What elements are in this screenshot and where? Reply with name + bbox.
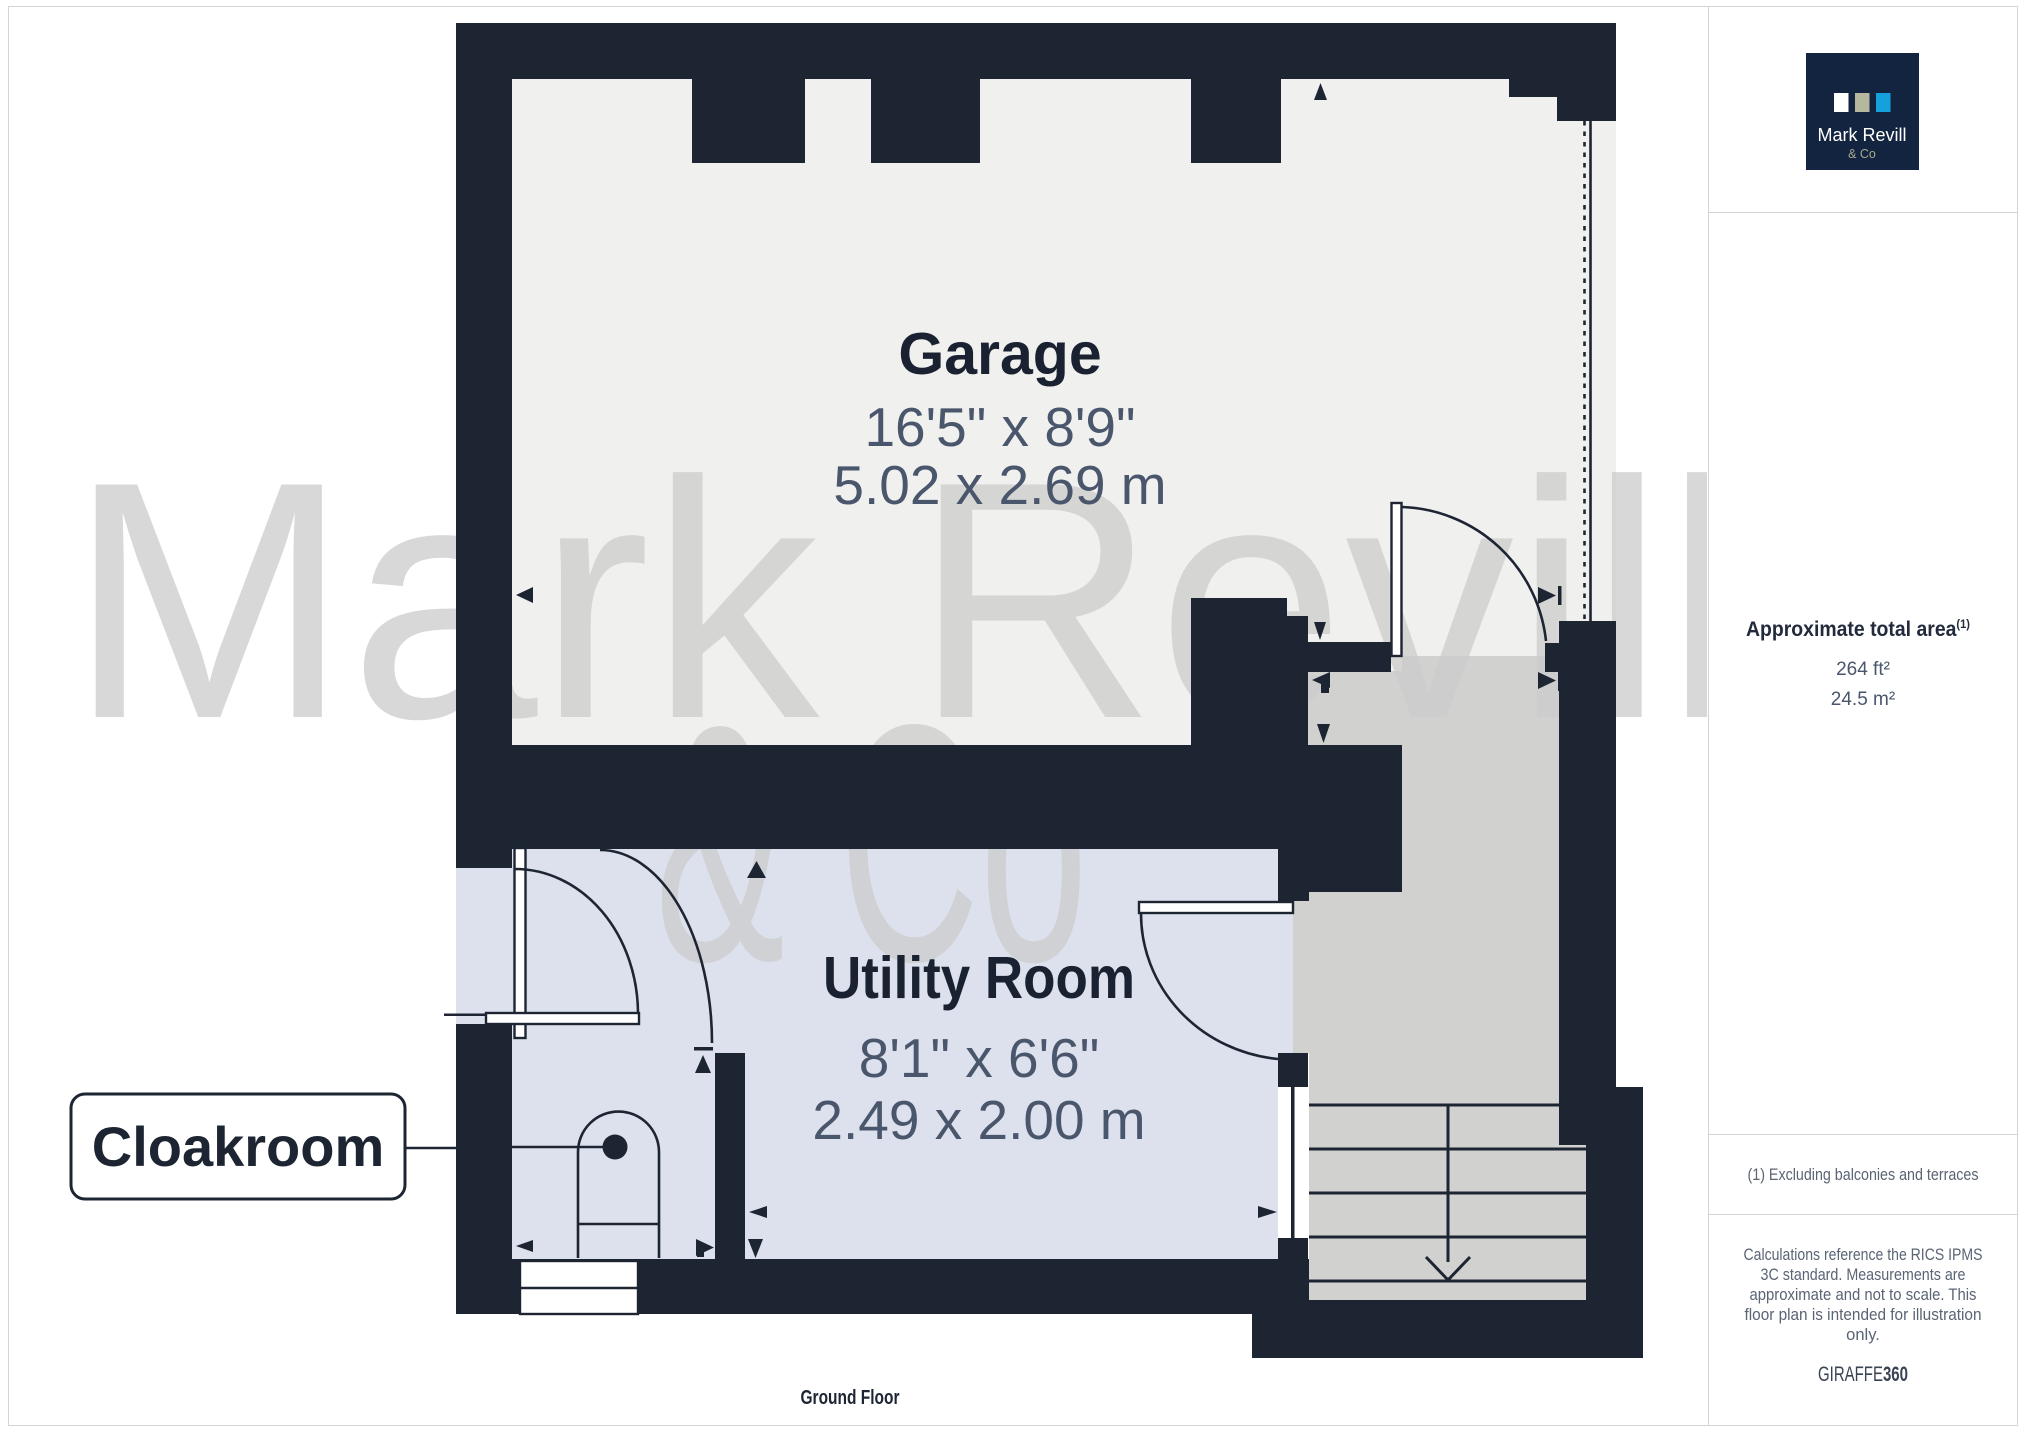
svg-text:16'5" x 8'9": 16'5" x 8'9" — [864, 396, 1135, 458]
svg-text:only.: only. — [1846, 1326, 1880, 1344]
svg-text:Calculations reference the RIC: Calculations reference the RICS IPMS — [1744, 1246, 1983, 1264]
svg-text:GIRAFFE360: GIRAFFE360 — [1818, 1363, 1908, 1386]
svg-text:Cloakroom: Cloakroom — [92, 1115, 385, 1178]
svg-text:floor plan is intended for ill: floor plan is intended for illustration — [1745, 1306, 1982, 1324]
svg-text:24.5 m²: 24.5 m² — [1831, 689, 1895, 710]
svg-text:& Co: & Co — [1848, 147, 1876, 161]
svg-text:Garage: Garage — [898, 321, 1101, 387]
svg-text:(1) Excluding balconies and te: (1) Excluding balconies and terraces — [1748, 1166, 1979, 1184]
svg-text:5.02 x 2.69 m: 5.02 x 2.69 m — [833, 454, 1166, 516]
svg-text:Approximate total area(1): Approximate total area(1) — [1746, 617, 1970, 641]
svg-text:264 ft²: 264 ft² — [1836, 659, 1890, 680]
svg-text:approximate and not to scale.: approximate and not to scale. This — [1750, 1286, 1977, 1304]
svg-text:3C standard. Measurements are: 3C standard. Measurements are — [1761, 1266, 1966, 1284]
svg-text:Utility Room: Utility Room — [823, 945, 1135, 1011]
svg-text:8'1" x 6'6": 8'1" x 6'6" — [859, 1027, 1099, 1089]
svg-text:Ground Floor: Ground Floor — [801, 1387, 900, 1409]
svg-text:Mark Revill: Mark Revill — [1817, 125, 1906, 145]
svg-text:2.49 x 2.00 m: 2.49 x 2.00 m — [812, 1089, 1145, 1151]
